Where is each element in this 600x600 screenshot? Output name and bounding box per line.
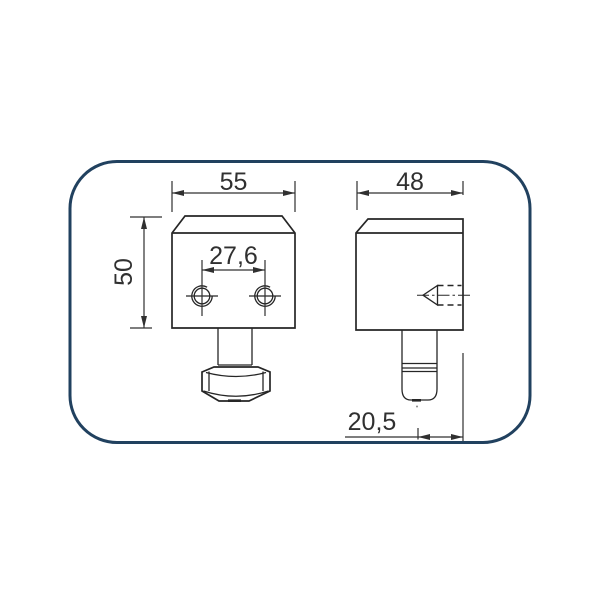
- dim-label-side-width: 48: [396, 168, 424, 196]
- dim-label-front-height: 50: [110, 258, 138, 286]
- dim-label-pin-offset: 20,5: [348, 408, 397, 436]
- hidden-tapped-hole: [417, 286, 470, 306]
- center-mark-dot: [416, 406, 418, 408]
- technical-drawing-canvas: 55 50 27,6 48 20,5: [0, 0, 600, 600]
- dim-label-front-width: 55: [220, 168, 248, 196]
- side-stem: [402, 330, 437, 400]
- side-body-outline: [356, 219, 463, 330]
- dim-front-height: 50: [110, 217, 162, 328]
- dim-side-width: 48: [357, 168, 463, 210]
- drawing-frame-border: [70, 162, 530, 443]
- front-nut-facets: [204, 372, 269, 397]
- dim-hole-spacing: 27,6: [202, 242, 265, 316]
- front-stem: [218, 328, 252, 365]
- dim-label-hole-spacing: 27,6: [209, 242, 258, 270]
- dim-front-width: 55: [172, 168, 295, 212]
- side-view: [356, 219, 470, 408]
- extension-lines: [418, 353, 463, 441]
- side-stem-groove-rings: [402, 364, 437, 372]
